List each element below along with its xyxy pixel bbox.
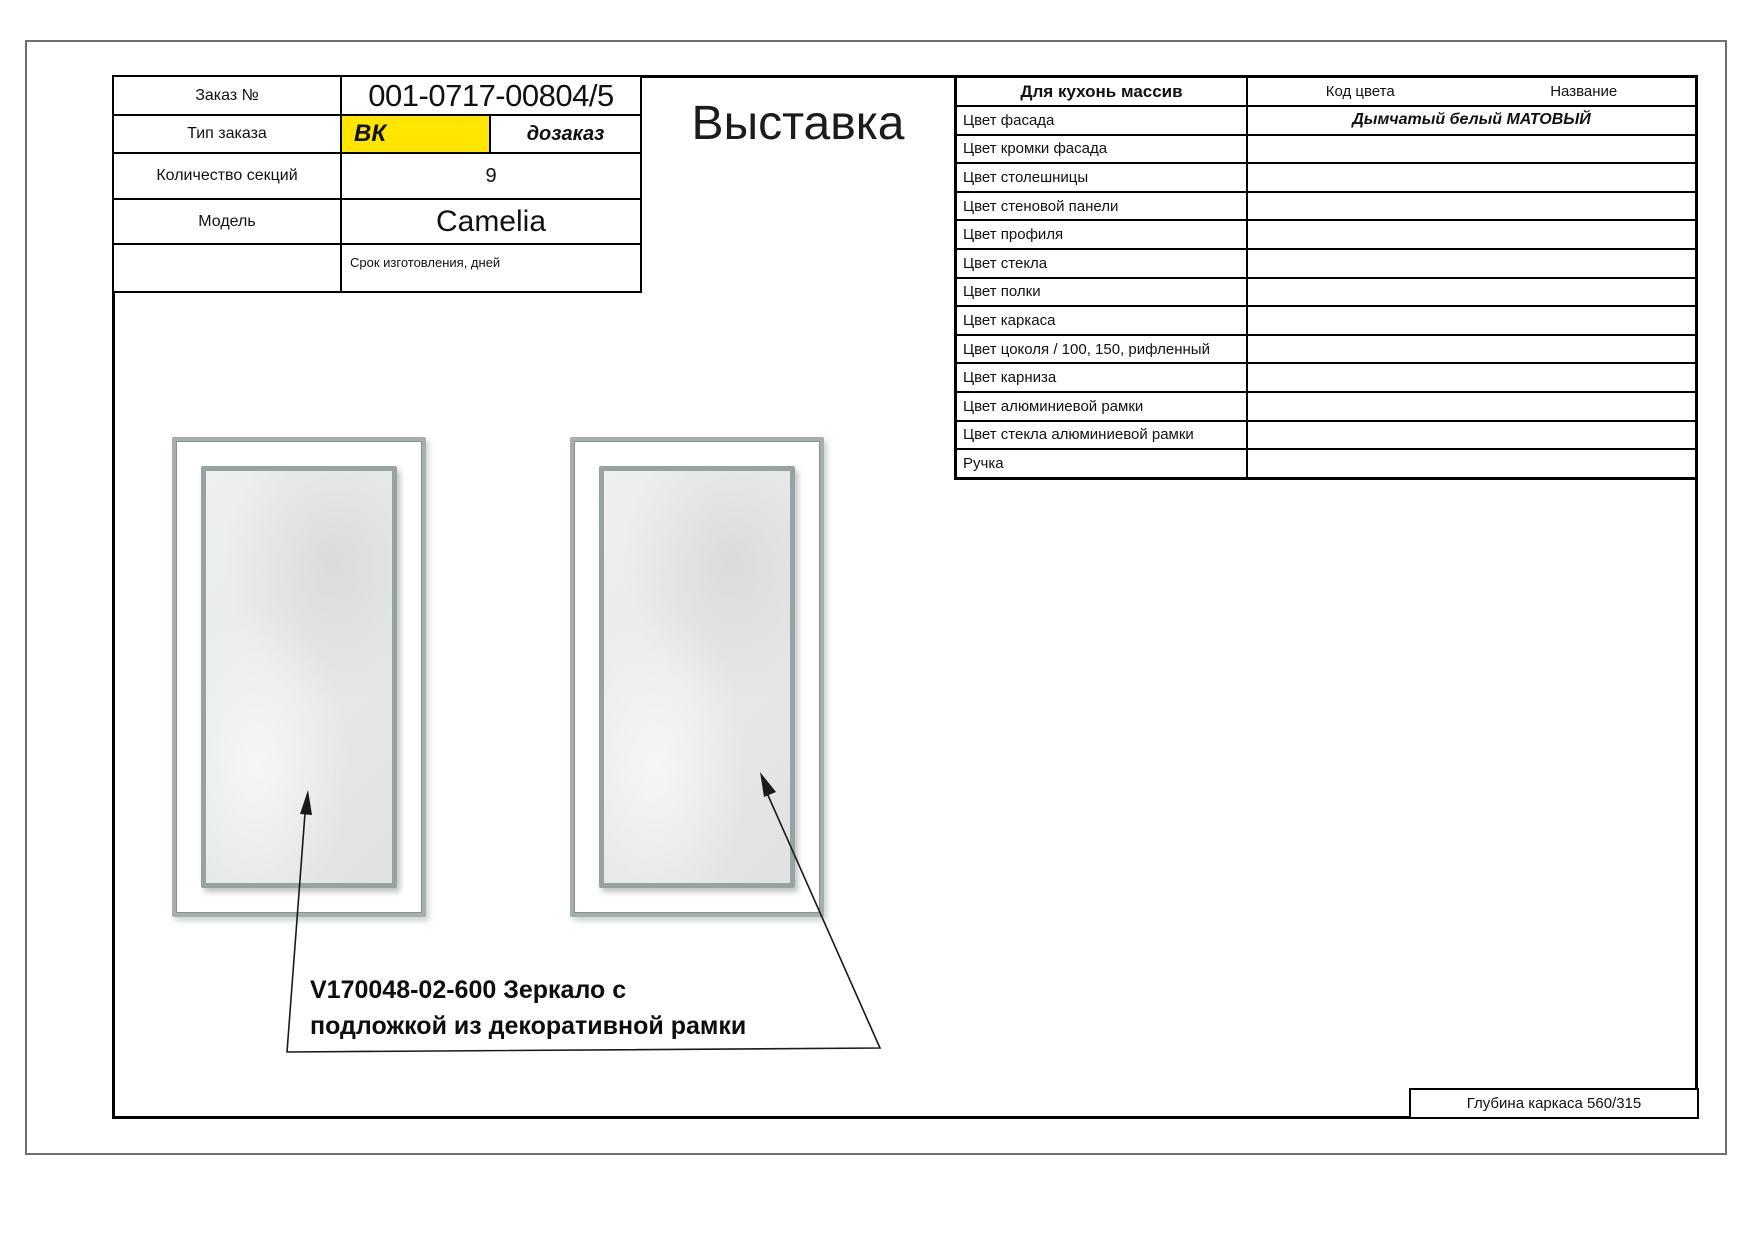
spec-table-row: Ручка: [957, 448, 1695, 477]
spec-table-row: Цвет каркаса: [957, 305, 1695, 334]
order-type-badge: ВК: [342, 116, 491, 152]
spec-row-value: Дымчатый белый МАТОВЫЙ: [1246, 107, 1695, 134]
model-label: Модель: [114, 198, 342, 243]
spec-row-value: [1246, 193, 1695, 220]
spec-row-label: Цвет полки: [957, 279, 1246, 306]
page-title: Выставка: [642, 96, 954, 151]
spec-row-value: [1246, 250, 1695, 277]
mirror-caption-line1: V170048-02-600 Зеркало с: [310, 972, 746, 1008]
spec-row-label: Цвет карниза: [957, 364, 1246, 391]
spec-table-row: Цвет кромки фасада: [957, 134, 1695, 163]
mirror-glass-left: [206, 471, 392, 883]
order-type-secondary: дозаказ: [491, 116, 640, 152]
frame-depth-box: Глубина каркаса 560/315: [1409, 1088, 1699, 1119]
mirror-glass-right: [604, 471, 790, 883]
spec-row-value: [1246, 336, 1695, 363]
spec-row-value: [1246, 450, 1695, 477]
order-number-label: Заказ №: [114, 77, 342, 114]
spec-row-value: [1246, 307, 1695, 334]
spec-row-label: Цвет стекла алюминиевой рамки: [957, 422, 1246, 449]
spec-row-value: [1246, 164, 1695, 191]
order-info-table: Заказ № 001-0717-00804/5 Тип заказа ВК д…: [112, 75, 642, 293]
spec-row-label: Цвет каркаса: [957, 307, 1246, 334]
spec-row-value: [1246, 279, 1695, 306]
order-number-value: 001-0717-00804/5: [342, 77, 640, 114]
spec-row-value: [1246, 364, 1695, 391]
spec-row-label: Цвет стеновой панели: [957, 193, 1246, 220]
order-type-label: Тип заказа: [114, 114, 342, 152]
spec-row-label: Цвет цоколя / 100, 150, рифленный: [957, 336, 1246, 363]
mirror-inner-frame-right: [599, 466, 795, 888]
spec-row-value: [1246, 136, 1695, 163]
spec-table-row: Цвет стеновой панели: [957, 191, 1695, 220]
mirror-inner-frame-left: [201, 466, 397, 888]
spec-sheet-page: Заказ № 001-0717-00804/5 Тип заказа ВК д…: [0, 0, 1754, 1241]
spec-table-row: Цвет стекла: [957, 248, 1695, 277]
spec-table-title: Для кухонь массив: [957, 78, 1246, 105]
spec-row-value: [1246, 422, 1695, 449]
spec-row-value: [1246, 393, 1695, 420]
spec-table-header: Для кухонь массив Код цвета Название: [957, 78, 1695, 105]
spec-table-row: Цвет карниза: [957, 362, 1695, 391]
spec-row-label: Ручка: [957, 450, 1246, 477]
spec-table-row: Цвет алюминиевой рамки: [957, 391, 1695, 420]
spec-table-row: Цвет полки: [957, 277, 1695, 306]
spec-table-value-headers: Код цвета Название: [1246, 78, 1695, 105]
spec-table-row: Цвет цоколя / 100, 150, рифленный: [957, 334, 1695, 363]
empty-label-cell: [114, 243, 342, 291]
sections-count-value: 9: [342, 152, 640, 198]
frame-depth-text: Глубина каркаса 560/315: [1467, 1095, 1642, 1112]
column-header-color-code: Код цвета: [1326, 83, 1395, 100]
spec-row-label: Цвет кромки фасада: [957, 136, 1246, 163]
spec-row-label: Цвет столешницы: [957, 164, 1246, 191]
spec-table-rows: Цвет фасадаДымчатый белый МАТОВЫЙЦвет кр…: [957, 105, 1695, 477]
spec-row-label: Цвет фасада: [957, 107, 1246, 134]
mirror-drawing-right: [570, 437, 824, 917]
color-spec-table: Для кухонь массив Код цвета Название Цве…: [954, 75, 1698, 480]
spec-row-label: Цвет алюминиевой рамки: [957, 393, 1246, 420]
model-value: Camelia: [342, 198, 640, 243]
spec-row-label: Цвет стекла: [957, 250, 1246, 277]
sections-count-label: Количество секций: [114, 152, 342, 198]
spec-row-value: [1246, 221, 1695, 248]
spec-table-row: Цвет стекла алюминиевой рамки: [957, 420, 1695, 449]
column-header-name: Название: [1550, 83, 1617, 100]
mirror-caption-line2: подложкой из декоративной рамки: [310, 1008, 746, 1044]
spec-table-row: Цвет столешницы: [957, 162, 1695, 191]
order-type-cell: ВК дозаказ: [342, 114, 640, 152]
spec-table-row: Цвет фасадаДымчатый белый МАТОВЫЙ: [957, 105, 1695, 134]
mirror-drawing-left: [172, 437, 426, 917]
mirror-caption: V170048-02-600 Зеркало с подложкой из де…: [310, 972, 746, 1044]
lead-time-label: Срок изготовления, дней: [342, 243, 640, 291]
spec-table-row: Цвет профиля: [957, 219, 1695, 248]
spec-row-label: Цвет профиля: [957, 221, 1246, 248]
